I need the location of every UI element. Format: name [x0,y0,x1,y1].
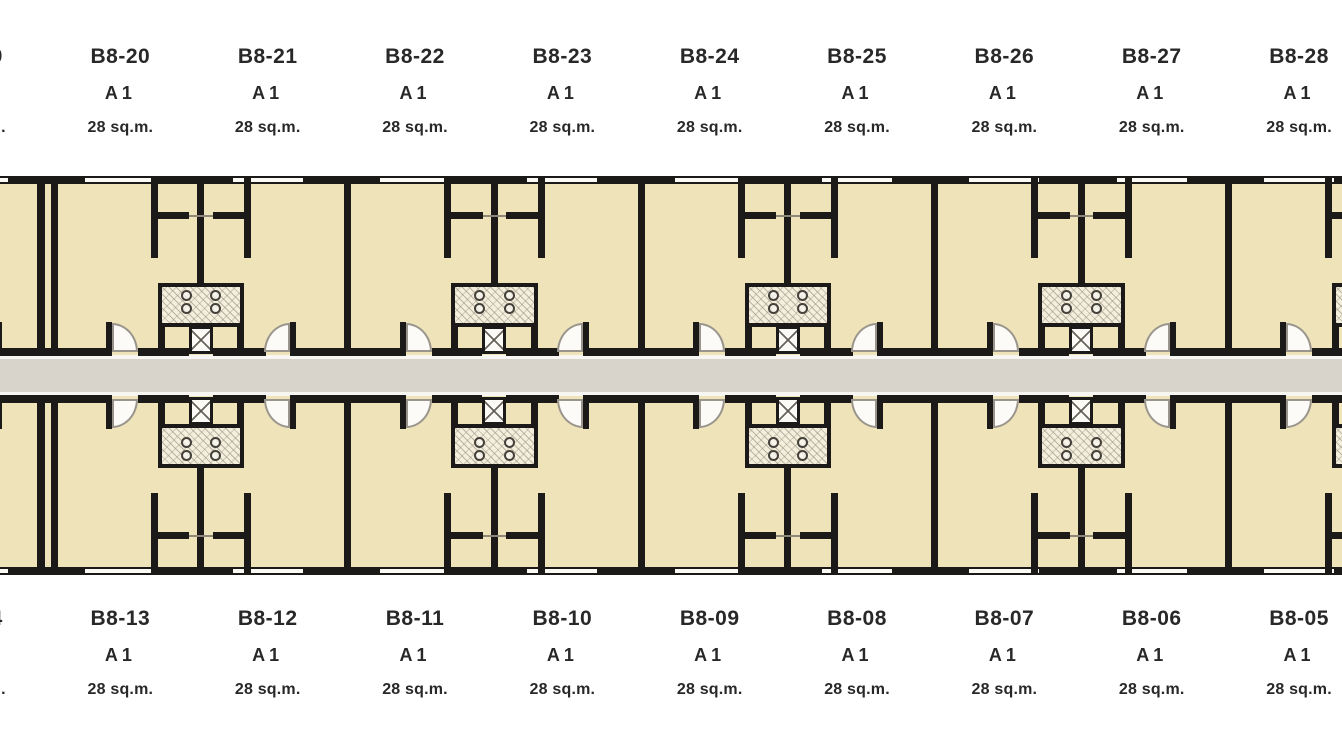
unit-type: A1 [530,81,596,105]
entry-door-leaf [583,322,589,356]
closet-wall [800,532,832,539]
unit-code: B8-22 [382,45,448,69]
closet-wall [800,212,832,219]
toilet-fixture-icon [210,290,221,301]
bathroom-pair [158,424,245,468]
core-wall [1325,493,1332,575]
closet-wall [451,212,483,219]
toilet-fixture-icon [797,303,808,314]
closet-wall [451,532,483,539]
closet-wall [1038,212,1070,219]
toilet-fixture-icon [504,303,515,314]
unit-label-b8-27[interactable]: B8-27A128 sq.m. [1119,45,1185,140]
window [380,176,450,184]
core-wall [1031,176,1038,258]
corridor-wall [645,348,694,356]
unit-area: 28 sq.m. [972,116,1038,140]
core-wall [738,493,745,575]
unit-code: B8-26 [972,45,1038,69]
core-wall [738,176,745,258]
entry-door-leaf [987,395,993,429]
closet-wall [1038,532,1070,539]
unit-label-b8-19[interactable]: B8-19A128 sq.m. [0,45,6,140]
pair-boundary-wall [344,395,351,575]
closet-wall [745,532,777,539]
unit-type: A1 [824,643,890,667]
pair-boundary-wall [638,176,645,356]
unit-type: A1 [677,81,743,105]
unit-code: B8-07 [972,607,1038,631]
corridor-wall [58,348,107,356]
corridor-wall [1176,395,1225,403]
unit-area: 28 sq.m. [88,678,154,702]
corridor-wall [1093,395,1146,403]
corridor-wall [351,348,400,356]
bathroom-pair [1332,424,1342,468]
unit-code: B8-05 [1266,607,1332,631]
corridor-wall [296,348,345,356]
bathroom-pair [451,424,538,468]
unit-label-b8-26[interactable]: B8-26A128 sq.m. [972,45,1038,140]
window [0,567,8,575]
unit-area: 28 sq.m. [0,678,6,702]
toilet-fixture-icon [1091,290,1102,301]
corridor-wall [1312,348,1342,356]
unit-area: 28 sq.m. [824,116,890,140]
unit-code: B8-10 [530,607,596,631]
toilet-fixture-icon [474,303,485,314]
entry-door-leaf [400,395,406,429]
toilet-fixture-icon [474,290,485,301]
section-end-wall [37,395,45,575]
toilet-fixture-icon [504,437,515,448]
unit-type: A1 [824,81,890,105]
unit-label-b8-08[interactable]: B8-08A128 sq.m. [824,607,890,702]
corridor-wall [1019,395,1070,403]
window [969,567,1039,575]
bathroom-pair [745,424,832,468]
unit-type: A1 [972,643,1038,667]
service-shaft [776,397,800,425]
unit-area: 28 sq.m. [235,678,301,702]
corridor-wall [432,348,483,356]
unit-code: B8-24 [677,45,743,69]
pair-boundary-wall [931,395,938,575]
pair-boundary-wall [51,395,58,575]
corridor-wall [725,395,776,403]
window [380,567,450,575]
unit-type: A1 [88,643,154,667]
pair-boundary-wall [1225,176,1232,356]
unit-code: B8-09 [677,607,743,631]
corridor-wall [213,395,266,403]
unit-code: B8-25 [824,45,890,69]
toilet-fixture-icon [1091,437,1102,448]
entry-door-leaf [290,322,296,356]
corridor-wall [1312,395,1342,403]
entry-door-leaf [290,395,296,429]
unit-label-b8-11[interactable]: B8-11A128 sq.m. [382,607,448,702]
pair-boundary-wall [51,176,58,356]
core-wall [244,176,251,258]
unit-type: A1 [382,643,448,667]
pair-boundary-wall [638,395,645,575]
toilet-fixture-icon [181,450,192,461]
corridor-wall [800,348,853,356]
toilet-fixture-icon [1091,450,1102,461]
toilet-fixture-icon [1061,303,1072,314]
unit-code: B8-28 [1266,45,1332,69]
corridor-wall [1019,348,1070,356]
unit-type: A1 [530,643,596,667]
closet-line [776,215,800,217]
corridor-wall [138,395,189,403]
unit-type: A1 [235,81,301,105]
closet-wall [506,212,538,219]
corridor [0,359,1342,392]
unit-type: A1 [677,643,743,667]
toilet-fixture-icon [1091,303,1102,314]
entry-door-leaf [987,322,993,356]
entry-door-leaf [877,395,883,429]
toilet-fixture-icon [768,290,779,301]
unit-code: B8-27 [1119,45,1185,69]
corridor-wall [800,395,853,403]
closet-line [483,215,507,217]
corridor-wall [213,348,266,356]
unit-label-b8-09[interactable]: B8-09A128 sq.m. [677,607,743,702]
unit-label-b8-07[interactable]: B8-07A128 sq.m. [972,607,1038,702]
core-wall [1325,176,1332,258]
unit-area: 28 sq.m. [0,116,6,140]
toilet-fixture-icon [768,450,779,461]
core-wall [1125,493,1132,575]
toilet-fixture-icon [768,303,779,314]
corridor-wall [1176,348,1225,356]
closet-line [1070,535,1094,537]
unit-area: 28 sq.m. [972,678,1038,702]
unit-code: B8-14 [0,607,6,631]
closet-line [189,215,213,217]
toilet-fixture-icon [181,303,192,314]
window [969,176,1039,184]
toilet-fixture-icon [797,290,808,301]
unit-label-b8-12[interactable]: B8-12A128 sq.m. [235,607,301,702]
unit-label-b8-20[interactable]: B8-20A128 sq.m. [88,45,154,140]
unit-code: B8-11 [382,607,448,631]
toilet-fixture-icon [797,450,808,461]
bathroom-pair [451,283,538,327]
unit-area: 28 sq.m. [677,116,743,140]
unit-label-b8-14[interactable]: B8-14A128 sq.m. [0,607,6,702]
bathroom-pair [1332,283,1342,327]
corridor-wall [351,395,400,403]
closet-wall [506,532,538,539]
closet-wall [1093,212,1125,219]
core-wall [831,176,838,258]
closet-wall [1332,212,1342,219]
unit-code: B8-12 [235,607,301,631]
toilet-fixture-icon [181,437,192,448]
closet-line [776,535,800,537]
toilet-fixture-icon [768,437,779,448]
floor-plan: B8-19A128 sq.m.B8-20A128 sq.m.B8-21A128 … [0,0,1342,754]
toilet-fixture-icon [474,437,485,448]
corridor-wall [432,395,483,403]
toilet-fixture-icon [504,290,515,301]
core-wall [151,176,158,258]
closet-wall [1332,532,1342,539]
unit-area: 28 sq.m. [677,678,743,702]
corridor-wall [883,348,932,356]
toilet-fixture-icon [504,450,515,461]
closet-line [1070,215,1094,217]
unit-label-b8-05[interactable]: B8-05A128 sq.m. [1266,607,1332,702]
toilet-fixture-icon [210,303,221,314]
corridor-wall [645,395,694,403]
unit-area: 28 sq.m. [1266,678,1332,702]
entry-door-leaf [0,322,2,356]
core-wall [538,493,545,575]
unit-type: A1 [972,81,1038,105]
unit-area: 28 sq.m. [1119,116,1185,140]
core-wall [1031,493,1038,575]
corridor-wall [938,348,987,356]
corridor-wall [138,348,189,356]
window [0,176,8,184]
unit-type: A1 [1119,81,1185,105]
corridor-wall [883,395,932,403]
unit-type: A1 [0,81,6,105]
corridor-wall [506,348,559,356]
toilet-fixture-icon [1061,437,1072,448]
unit-label-b8-25[interactable]: B8-25A128 sq.m. [824,45,890,140]
closet-wall [1093,532,1125,539]
bathroom-pair [158,283,245,327]
closet-wall [158,212,190,219]
unit-type: A1 [235,643,301,667]
unit-type: A1 [1266,81,1332,105]
toilet-fixture-icon [181,290,192,301]
core-wall [244,493,251,575]
unit-label-b8-23[interactable]: B8-23A128 sq.m. [530,45,596,140]
unit-label-b8-13[interactable]: B8-13A128 sq.m. [88,607,154,702]
closet-wall [213,212,245,219]
window [85,567,155,575]
unit-label-b8-24[interactable]: B8-24A128 sq.m. [677,45,743,140]
toilet-fixture-icon [797,437,808,448]
core-wall [538,176,545,258]
toilet-fixture-icon [1061,450,1072,461]
service-shaft [482,397,506,425]
closet-wall [745,212,777,219]
corridor-wall [506,395,559,403]
unit-code: B8-19 [0,45,6,69]
unit-code: B8-06 [1119,607,1185,631]
unit-code: B8-08 [824,607,890,631]
entry-door-leaf [583,395,589,429]
corridor-wall [1232,395,1281,403]
service-shaft [482,326,506,354]
toilet-fixture-icon [474,450,485,461]
corridor-wall [589,395,638,403]
entry-door-leaf [1170,322,1176,356]
corridor-wall [938,395,987,403]
unit-code: B8-20 [88,45,154,69]
toilet-fixture-icon [1061,290,1072,301]
unit-type: A1 [88,81,154,105]
core-wall [151,493,158,575]
service-shaft [776,326,800,354]
closet-line [483,535,507,537]
core-wall [444,493,451,575]
window [675,567,745,575]
unit-label-b8-28[interactable]: B8-28A128 sq.m. [1266,45,1332,140]
entry-door-leaf [400,322,406,356]
corridor-wall [725,348,776,356]
unit-area: 28 sq.m. [530,678,596,702]
service-shaft [1069,397,1093,425]
unit-area: 28 sq.m. [88,116,154,140]
entry-door-leaf [1170,395,1176,429]
bathroom-pair [1038,424,1125,468]
core-wall [444,176,451,258]
unit-area: 28 sq.m. [382,116,448,140]
unit-type: A1 [1266,643,1332,667]
unit-type: A1 [0,643,6,667]
unit-area: 28 sq.m. [824,678,890,702]
corridor-wall [58,395,107,403]
section-end-wall [37,176,45,356]
service-shaft [189,397,213,425]
bathroom-pair [745,283,832,327]
core-wall [831,493,838,575]
unit-area: 28 sq.m. [235,116,301,140]
entry-door-leaf [877,322,883,356]
closet-line [189,535,213,537]
pair-boundary-wall [1225,395,1232,575]
unit-code: B8-13 [88,607,154,631]
unit-label-b8-21[interactable]: B8-21A128 sq.m. [235,45,301,140]
unit-area: 28 sq.m. [1119,678,1185,702]
unit-area: 28 sq.m. [1266,116,1332,140]
unit-type: A1 [382,81,448,105]
unit-area: 28 sq.m. [530,116,596,140]
unit-label-b8-06[interactable]: B8-06A128 sq.m. [1119,607,1185,702]
unit-label-b8-22[interactable]: B8-22A128 sq.m. [382,45,448,140]
service-shaft [189,326,213,354]
pair-boundary-wall [931,176,938,356]
window [85,176,155,184]
entry-door-leaf [0,395,2,429]
closet-wall [213,532,245,539]
closet-wall [158,532,190,539]
unit-code: B8-23 [530,45,596,69]
window [675,176,745,184]
unit-type: A1 [1119,643,1185,667]
toilet-fixture-icon [210,437,221,448]
corridor-wall [296,395,345,403]
unit-label-b8-10[interactable]: B8-10A128 sq.m. [530,607,596,702]
corridor-wall [1093,348,1146,356]
bathroom-pair [1038,283,1125,327]
pair-boundary-wall [344,176,351,356]
corridor-wall [589,348,638,356]
toilet-fixture-icon [210,450,221,461]
corridor-wall [1232,348,1281,356]
unit-area: 28 sq.m. [382,678,448,702]
core-wall [1125,176,1132,258]
unit-code: B8-21 [235,45,301,69]
service-shaft [1069,326,1093,354]
